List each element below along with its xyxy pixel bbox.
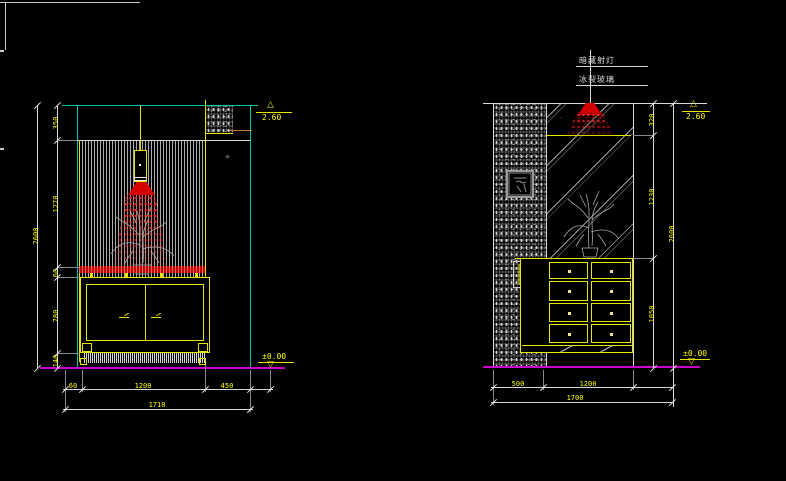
right-bottom-overall-line	[491, 402, 674, 403]
right-plant-sketch	[558, 172, 622, 258]
left-granite-block	[206, 106, 233, 133]
left-bottom-ext-4	[250, 370, 251, 412]
left-lamp-stem	[140, 105, 141, 150]
sheet-border-left	[5, 2, 6, 50]
drawer-l2	[549, 281, 588, 301]
sheet-border-tick	[0, 148, 4, 150]
left-lamp-band-1	[134, 177, 147, 178]
right-level-top-triangle-icon: △	[690, 100, 697, 109]
left-cabinet-base-grille	[84, 353, 206, 363]
right-spotlight-label: 暗藏射灯	[579, 55, 615, 66]
right-dim-seg-2: 1230	[648, 175, 656, 219]
right-level-floor-triangle-icon: ▽	[688, 358, 695, 367]
right-dim-ext-2	[633, 258, 653, 259]
right-glass-label: 冰裂玻璃	[579, 74, 615, 85]
drawer-l1	[549, 262, 588, 279]
left-bottom-seg-2: 1200	[121, 382, 165, 390]
left-bottom-overall-value: 1710	[135, 401, 179, 409]
left-bottom-seg-1: 60	[51, 382, 95, 390]
right-glass-edge-right	[633, 103, 634, 368]
right-wall-plaque	[506, 170, 534, 198]
drawer-knob	[568, 270, 571, 273]
right-spotlight-label-line	[576, 66, 648, 67]
drawer-r3	[591, 303, 631, 322]
left-block-reference-mark: ✳	[225, 154, 230, 161]
right-glass-label-line	[576, 85, 648, 86]
left-plant-sketch	[103, 193, 178, 275]
drawer-knob	[568, 333, 571, 336]
right-chest-base-top	[522, 345, 632, 346]
left-granite-base-line	[206, 133, 233, 134]
left-level-top-value: 2.60	[262, 113, 281, 122]
left-red-shelf-band	[79, 266, 205, 273]
left-cabinet-notch-left	[82, 343, 92, 352]
left-cabinet-door-divider	[145, 284, 146, 341]
left-wall-line-right	[250, 105, 251, 368]
left-bottom-ext-1	[65, 370, 66, 412]
right-level-floor-line	[680, 359, 710, 360]
left-trim-line	[230, 130, 252, 131]
drawer-l3	[549, 303, 588, 322]
drawer-knob	[610, 312, 613, 315]
right-level-floor-value: ±0.00	[683, 349, 707, 358]
left-bottom-seg-3: 450	[205, 382, 249, 390]
left-lamp-band-2	[134, 180, 147, 181]
left-wall-line-left	[77, 105, 78, 368]
left-door-handle-1	[119, 317, 129, 318]
cad-canvas[interactable]: ✳ △ 2.60 ±0.00 ▽ 2600 350 1270 60 780 14…	[0, 0, 786, 481]
left-dim-ext-3	[57, 277, 80, 278]
drawer-knob	[610, 333, 613, 336]
drawer-r4	[591, 324, 631, 343]
sheet-border-mark	[0, 50, 4, 52]
right-level-top-value: 2.60	[686, 112, 705, 121]
right-bottom-overall-value: 1700	[553, 394, 597, 402]
left-dim-seg-5: 140	[52, 339, 60, 383]
right-floor-line	[483, 366, 700, 368]
left-dim-ext-1	[57, 140, 77, 141]
left-floor-line	[40, 367, 285, 369]
left-dim-overall-value: 2600	[32, 214, 40, 258]
right-dim-seg-3: 1050	[648, 292, 656, 336]
left-level-floor-value: ±0.00	[262, 352, 286, 361]
drawer-l4	[549, 324, 588, 343]
right-bottom-seg-1: 500	[496, 380, 540, 388]
right-plaque-glyph	[508, 172, 532, 196]
right-dim-overall-value: 2600	[668, 212, 676, 256]
left-dim-seg-2: 1270	[52, 182, 60, 226]
left-dim-ext-2	[57, 267, 79, 268]
drawer-knob	[568, 290, 571, 293]
drawer-knob	[568, 312, 571, 315]
left-lamp-dot	[139, 164, 141, 166]
left-dim-ext-4	[57, 353, 80, 354]
left-cabinet-foot-right	[199, 358, 206, 365]
left-cabinet-foot-left	[80, 358, 87, 365]
drawer-knob	[610, 290, 613, 293]
drawer-knob	[610, 270, 613, 273]
left-level-floor-line	[258, 362, 294, 363]
sheet-border-top	[0, 2, 140, 3]
drawer-r1	[591, 262, 631, 279]
left-bottom-overall-line	[63, 409, 253, 410]
left-cabinet-notch-right	[198, 343, 208, 352]
drawer-r2	[591, 281, 631, 301]
left-dim-seg-4: 780	[52, 294, 60, 338]
left-dim-seg-3: 60	[52, 251, 60, 295]
left-door-handle-2	[151, 317, 161, 318]
left-level-floor-triangle-icon: ▽	[267, 361, 274, 370]
left-level-top-triangle-icon: △	[267, 101, 274, 110]
right-column-edge-left	[493, 103, 494, 368]
right-bottom-seg-2: 1200	[566, 380, 610, 388]
right-reference-dot: ·	[560, 115, 562, 122]
